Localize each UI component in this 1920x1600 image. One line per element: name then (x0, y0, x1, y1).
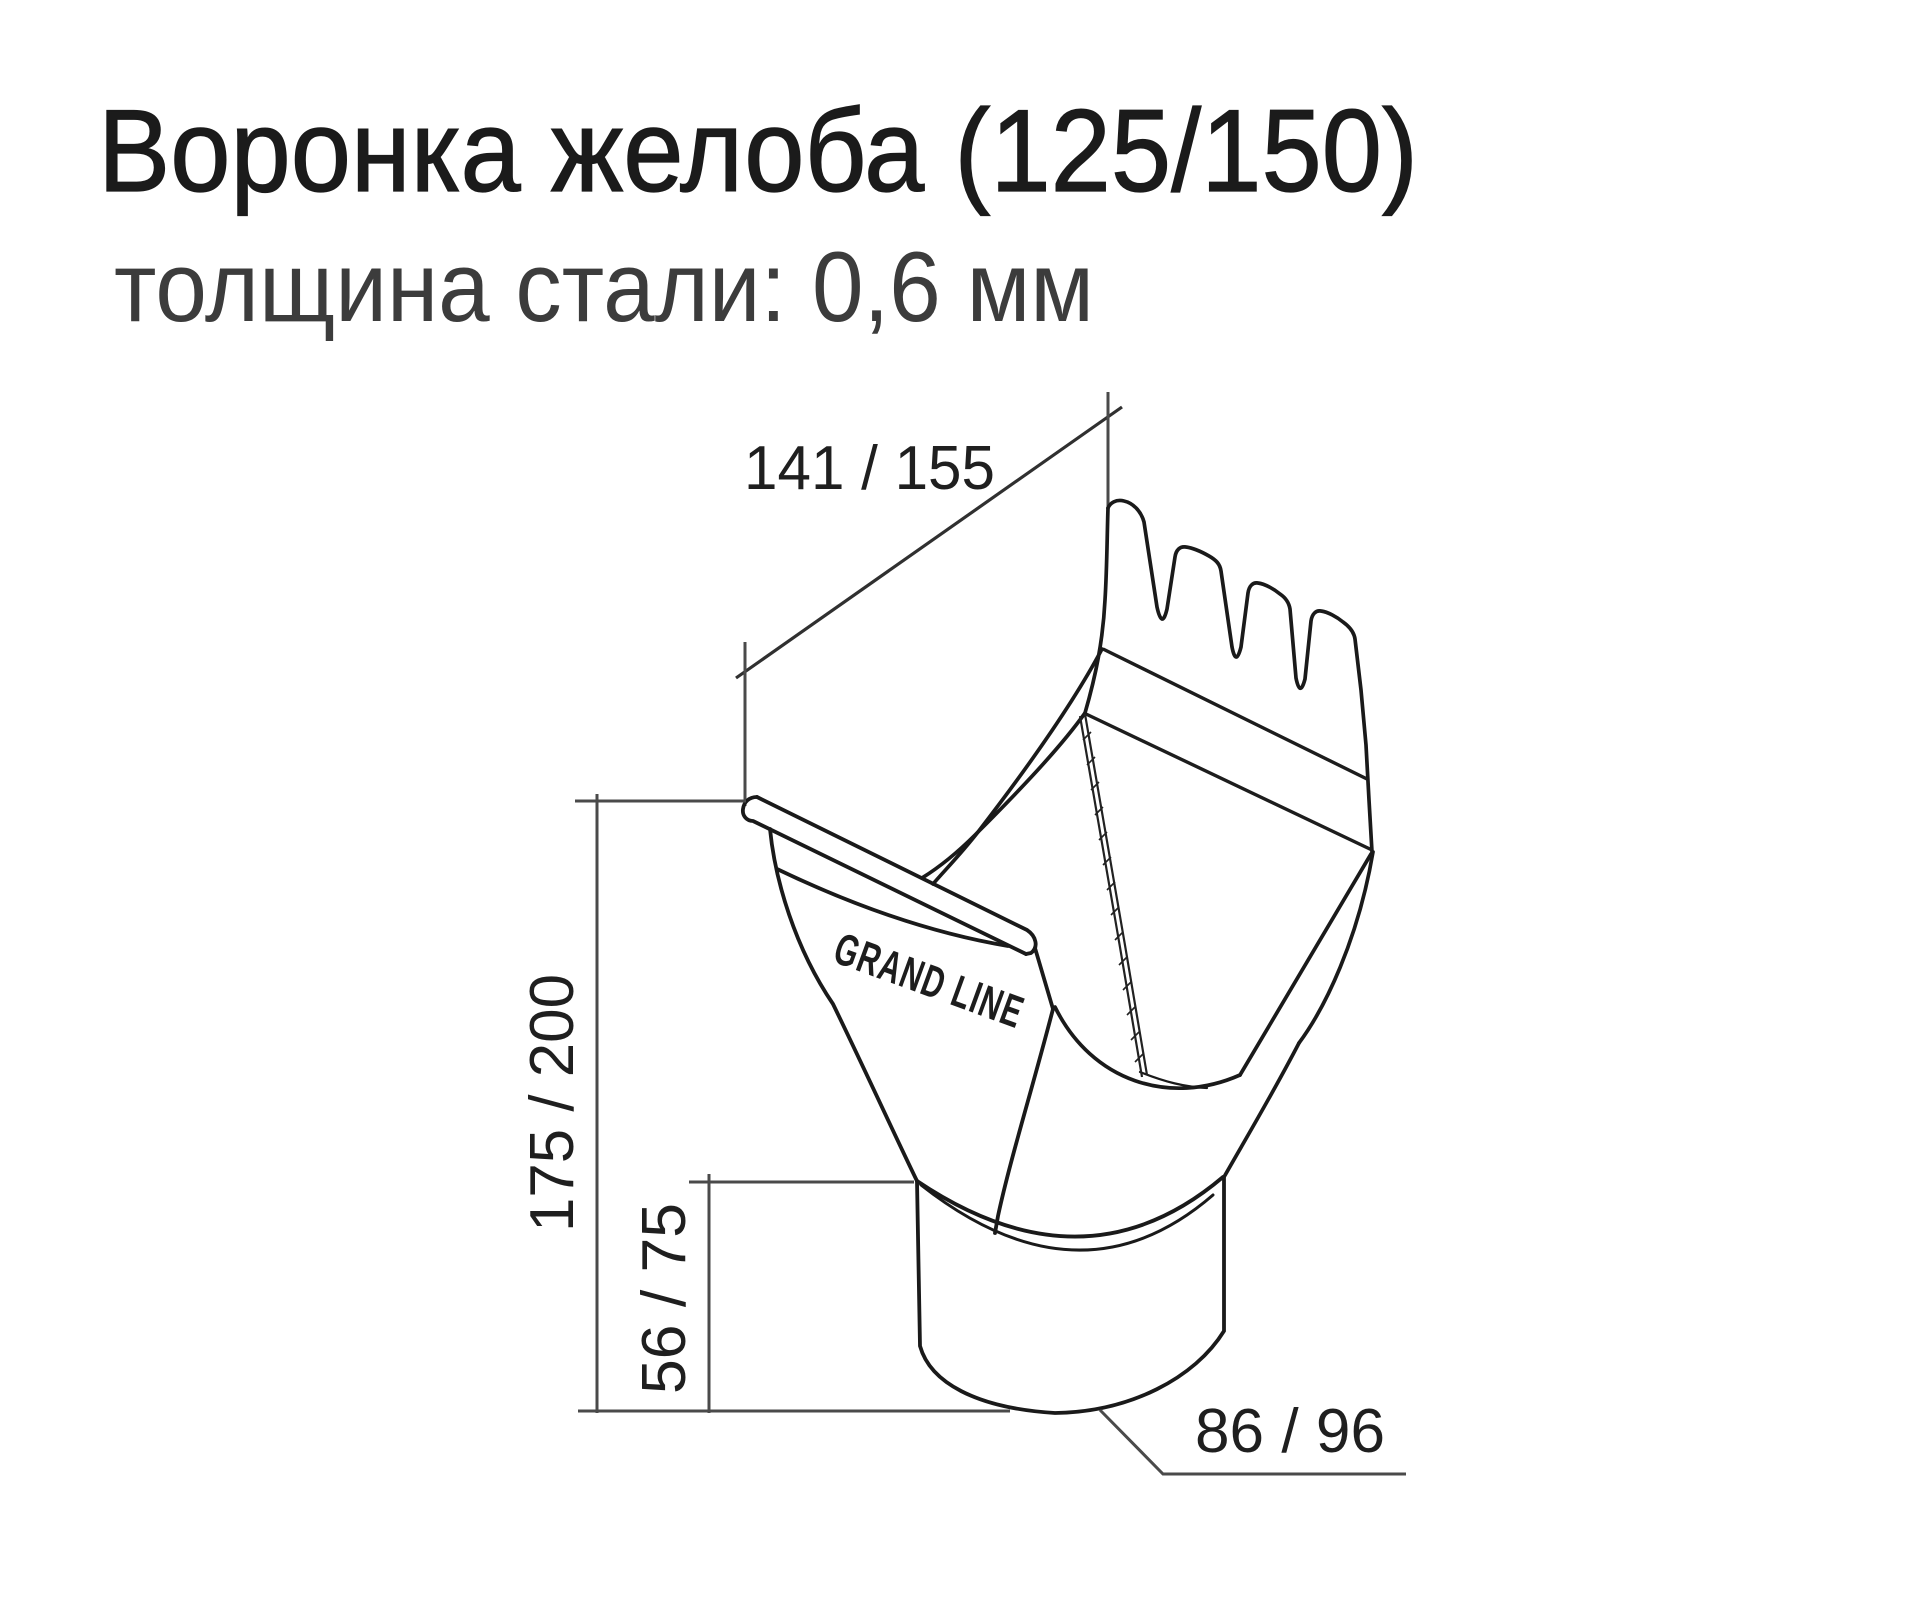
svg-text:175 / 200: 175 / 200 (518, 974, 587, 1232)
svg-text:86 / 96: 86 / 96 (1195, 1397, 1385, 1466)
svg-text:56 / 75: 56 / 75 (630, 1203, 699, 1394)
svg-text:141 / 155: 141 / 155 (744, 434, 995, 503)
svg-text:Воронка желоба (125/150): Воронка желоба (125/150) (98, 85, 1418, 216)
svg-text:толщина стали: 0,6 мм: толщина стали: 0,6 мм (114, 231, 1094, 342)
